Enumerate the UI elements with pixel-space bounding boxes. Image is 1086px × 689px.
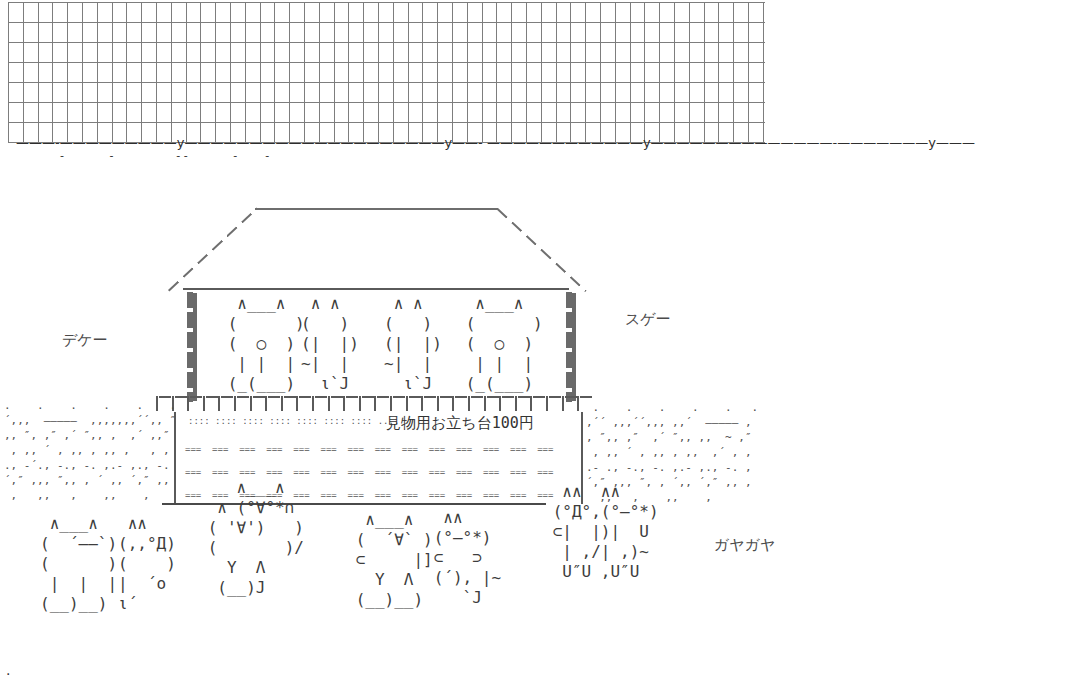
ground-texture-left: . . . . . . ´‚‚‚ ————— ‚‚‚‚‚‚‚´´‚‚ ″ ‚, … [4,398,176,503]
platform-edge-ticks [156,396,593,411]
roof-ridge-line [255,208,498,210]
brick-wall-grid [8,2,765,143]
crowd-cat-shii: ∧∧ (,,°Д) ( ) | ´o ι´ [118,514,176,614]
label-gayagaya: ガヤガヤ [714,536,775,555]
roof-left-slope [168,207,256,290]
crowd-cat-cheer-pair: ∧___∧ ∧ (°∀°*∩ ( '∀') ) ( )/ Y Λ (__)J [198,478,304,598]
platform-top-edge [156,396,593,412]
horizon-tick-marks: ‐ ‐ ‐ ‐ ‐ ‐ [60,150,269,161]
crowd-cat-watch-pair: ∧∧ ∧∧ (°Д°,(°—°*) ⊂| |)| U | ,/| ,)~ U″U… [543,482,659,582]
crowd-cat-camera: ∧___∧ ( ´∀` ) ⊂ |] Y Λ (__)__) [346,510,433,610]
stand-left-pillar [187,292,193,402]
stand-right-pillar [566,292,572,402]
crowd-cat-calm: ∧___∧ ( ´——`) ( ) | | | (__)__) [40,514,117,614]
stand-roof [168,206,588,292]
stage-cat-back-round-1: ∧___∧ ( ) ( ○ ) | | | (_(___) [218,294,305,394]
roof-right-slope [498,208,586,291]
platform-sign-text: 見物用お立ち台100円 [386,414,534,433]
horizon-line: ———‐—————————y————————————————————y——‐ —… [16,136,975,150]
stand-eave-line [183,288,569,290]
corner-dot: . [6,662,10,678]
label-dekee: デケー [62,331,108,350]
stage-cat-back-round-2: ∧___∧ ( ) ( ○ ) | | | (_(___) [456,294,543,394]
ascii-art-page: { "scene": { "bg": "#ffffff", "wall_line… [0,0,1086,689]
platform-edge-bars [156,396,593,398]
platform-dots-row: :::: :::: :::: :::: :::: :::: :::: .... [188,416,399,426]
stage-cat-back-tail-1: ∧ ∧ ( ) (| |) ~| | ι`J [301,294,359,394]
crowd-cat-walker: ∧∧ (°—°*) ⊂ ⊃ (´), |~ `J [424,508,501,608]
label-sugee: スゲー [625,310,671,329]
stage-cat-back-tail-2: ∧ ∧ ( ) (| |) ~| | ι`J [384,294,442,394]
